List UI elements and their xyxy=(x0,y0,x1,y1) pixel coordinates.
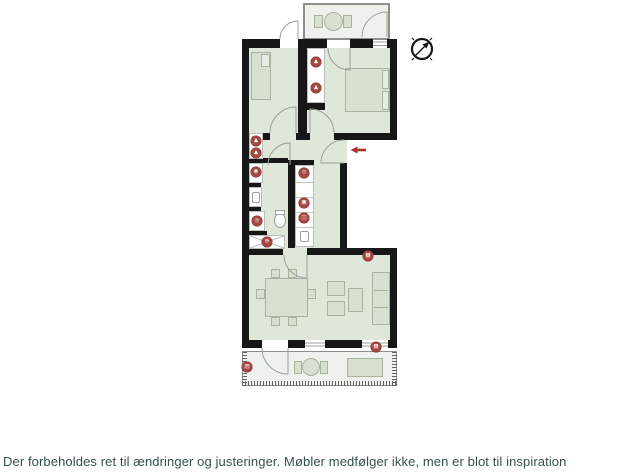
dryer-icon: ◎ xyxy=(252,216,263,227)
balcony-table xyxy=(324,12,343,31)
bath-sink-cabinet xyxy=(249,187,262,207)
chair xyxy=(271,269,280,278)
shower-icon: ⊕ xyxy=(262,237,273,248)
dishwasher-icon: ◫ xyxy=(299,213,310,224)
balcony-seat xyxy=(314,15,323,28)
wall xyxy=(390,248,397,348)
wall xyxy=(242,248,283,255)
toilet-tank xyxy=(275,210,285,215)
armchair xyxy=(327,281,345,296)
balcony-railing xyxy=(242,381,397,386)
chair xyxy=(271,317,280,326)
entrance-arrow-icon xyxy=(351,147,367,154)
armchair xyxy=(327,301,345,316)
door-gap xyxy=(310,133,334,140)
wall xyxy=(334,133,348,140)
washing-machine-icon: ◉ xyxy=(251,167,262,178)
pillow xyxy=(382,91,389,110)
wall xyxy=(348,133,397,140)
balcony-seat xyxy=(343,15,352,28)
wall xyxy=(325,340,362,348)
wall xyxy=(296,133,310,140)
door-gap xyxy=(270,133,296,140)
wall xyxy=(307,248,340,255)
daybed xyxy=(347,358,383,377)
chair xyxy=(288,269,297,278)
stove-icon: ⊙ xyxy=(299,168,310,179)
cabinet-divider xyxy=(296,182,313,183)
wall xyxy=(242,39,249,348)
top-balcony xyxy=(303,3,390,40)
door-gap xyxy=(283,248,307,255)
wall xyxy=(340,163,347,255)
disclaimer-text: Der forbeholdes ret til ændringer og jus… xyxy=(3,454,640,469)
pillow xyxy=(382,70,389,89)
chair xyxy=(288,317,297,326)
balcony-seat xyxy=(294,361,302,374)
wall xyxy=(298,48,307,133)
wall xyxy=(288,160,295,248)
sofa xyxy=(372,272,390,325)
entrance-gap xyxy=(340,140,347,163)
kitchen-sink xyxy=(300,231,309,242)
wall xyxy=(350,39,373,48)
chair xyxy=(256,289,265,299)
wall xyxy=(288,340,305,348)
door-arc xyxy=(280,21,298,39)
floor-plan-page: ▲ ▲ ▲ ▲ ◉ ◎ ⊕ ⊙ ▣ ◫ ▦ ▦ ▤ Der forbeholde… xyxy=(0,0,640,473)
oven-icon: ▣ xyxy=(299,198,310,209)
sofa-cushion-line xyxy=(374,307,388,308)
chair xyxy=(307,289,316,299)
wall xyxy=(388,340,397,348)
cabinet-divider xyxy=(296,227,313,228)
compass-icon xyxy=(412,38,432,60)
wall xyxy=(242,340,262,348)
bath-sink xyxy=(252,192,260,203)
wall xyxy=(390,39,397,140)
radiator-icon: ▦ xyxy=(363,251,374,262)
toilet xyxy=(274,213,286,228)
balcony-table xyxy=(302,358,320,376)
wall xyxy=(298,39,327,48)
dining-table xyxy=(265,278,308,317)
radiator-icon: ▦ xyxy=(371,342,382,353)
hanger-icon: ▲ xyxy=(251,148,262,159)
outdoor-heater-icon: ▤ xyxy=(242,362,253,373)
balcony-seat xyxy=(320,361,328,374)
hanger-icon: ▲ xyxy=(311,83,322,94)
sofa-cushion-line xyxy=(374,290,388,291)
pillow xyxy=(261,54,270,67)
hanger-icon: ▲ xyxy=(311,57,322,68)
coffee-table xyxy=(348,288,363,312)
hanger-icon: ▲ xyxy=(251,136,262,147)
wall xyxy=(307,103,325,110)
